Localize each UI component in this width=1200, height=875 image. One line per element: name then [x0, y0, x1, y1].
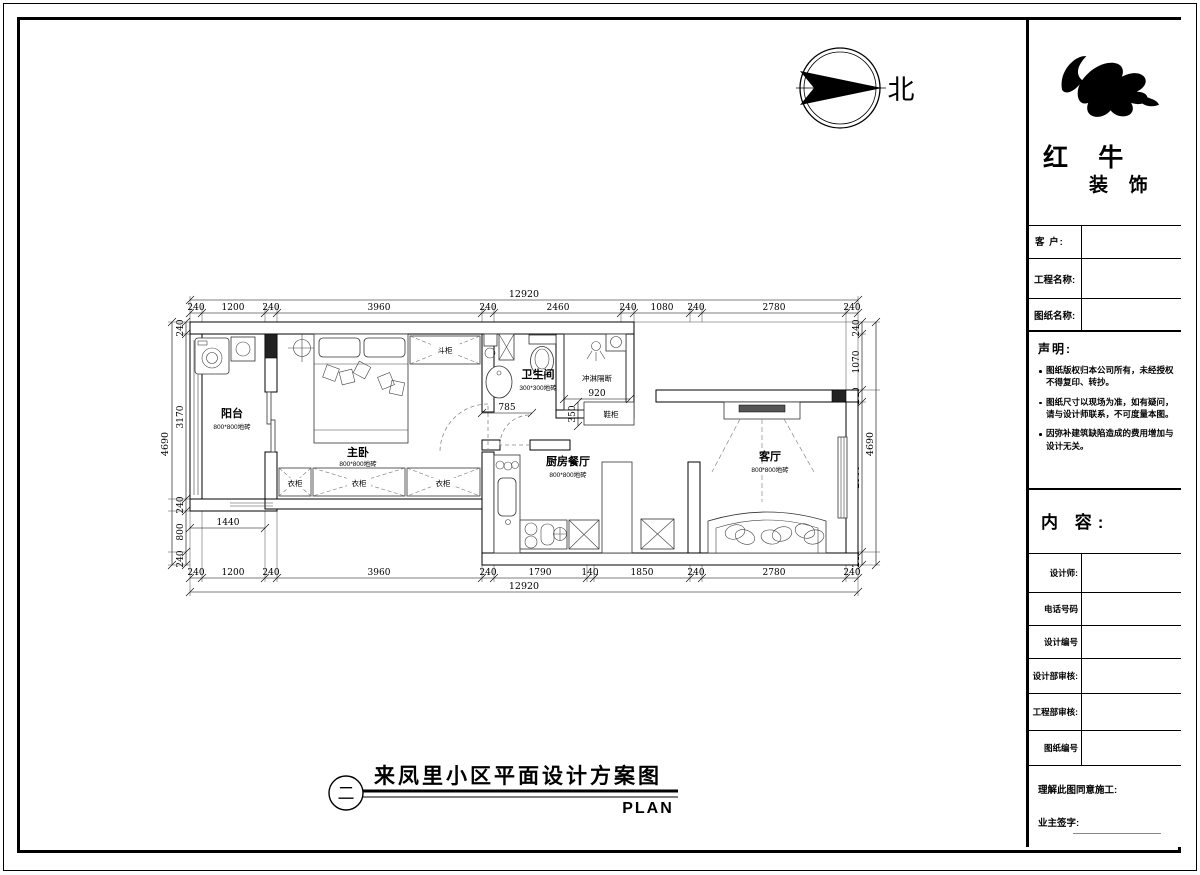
- divider: [1029, 592, 1181, 593]
- dim: 240: [687, 568, 704, 578]
- kitchen-cabinet-1: [569, 520, 599, 549]
- sofa: [708, 512, 826, 553]
- wardrobe-label: 衣柜: [288, 478, 303, 488]
- brand-name: 红 牛: [1043, 138, 1135, 174]
- divider: [1029, 625, 1181, 626]
- dim: 240: [176, 550, 186, 567]
- divider: [1029, 298, 1181, 299]
- radiator: [838, 437, 847, 518]
- dim-left-total: 4690: [160, 432, 171, 456]
- dim-right-total: 4690: [865, 432, 876, 456]
- owner-sign-label: 业主签字:: [1038, 815, 1079, 829]
- mop-sink: [231, 337, 255, 361]
- divider: [1029, 730, 1181, 731]
- wardrobe-2: 衣柜: [313, 468, 405, 496]
- dim: 2460: [547, 303, 570, 313]
- designer-label: 设计师:: [1029, 567, 1078, 579]
- dim: 1070: [852, 350, 862, 373]
- room-balcony: 阳台: [221, 406, 243, 420]
- divider: [1081, 553, 1082, 765]
- left-dimensions: 4690 240 3170 240 800 240: [160, 318, 190, 569]
- sheet-title: 二 来凤里小区平面设计方案图 PLAN: [329, 764, 678, 817]
- tile-label: 800*800地砖: [339, 459, 377, 468]
- divider: [1029, 693, 1181, 694]
- drawing-name-label: 图纸名称:: [1034, 308, 1075, 322]
- room-bathroom: 卫生间: [522, 367, 555, 381]
- dim-bottom-total: 12920: [509, 581, 539, 592]
- divider: [1081, 225, 1082, 330]
- dim: 240: [262, 303, 279, 313]
- dim: 920: [588, 389, 605, 399]
- tile-label: 800*800地砖: [751, 465, 789, 474]
- divider: [1029, 658, 1181, 659]
- room-living: 客厅: [758, 449, 781, 463]
- dim: 2780: [763, 303, 786, 313]
- divider: [1029, 765, 1181, 766]
- stove: [520, 520, 567, 549]
- dim: 1850: [631, 568, 654, 578]
- dim: 3170: [176, 405, 186, 428]
- statement-item: 因弥补建筑缺陷造成的费用增加与设计无关。: [1036, 427, 1176, 452]
- dim: 3960: [368, 568, 391, 578]
- dim: 240: [176, 496, 186, 513]
- divider: [1029, 488, 1181, 490]
- washbasin: [486, 366, 512, 398]
- statement-item: 图纸尺寸以现场为准，如有疑问，请与设计师联系，不可度量本图。: [1036, 396, 1176, 421]
- title-sub: PLAN: [622, 800, 674, 817]
- agree-label: 理解此图同意施工:: [1038, 782, 1117, 796]
- statement-title: 声明:: [1038, 340, 1072, 357]
- dim: 1200: [222, 303, 245, 313]
- divider: [1029, 225, 1181, 226]
- design-no-label: 设计编号: [1029, 636, 1078, 648]
- brand-sub: 装 饰: [1089, 170, 1156, 197]
- dim: 240: [479, 303, 496, 313]
- content-label: 内 容:: [1041, 508, 1109, 533]
- dim: 785: [498, 403, 515, 413]
- design-dept-label: 设计部审核:: [1029, 670, 1078, 682]
- wardrobe-label: 衣柜: [436, 478, 451, 488]
- ceiling-lamp-icon: [288, 334, 316, 362]
- dim: 240: [262, 568, 279, 578]
- signature-line: [1073, 833, 1161, 834]
- dim: 240: [843, 303, 860, 313]
- dim: 350: [568, 405, 578, 422]
- washing-machine: [195, 338, 229, 374]
- dim: 1200: [222, 568, 245, 578]
- tile-label: 800*800地砖: [549, 470, 587, 479]
- shoe-cabinet-label: 鞋柜: [604, 409, 619, 419]
- dim: 240: [187, 303, 204, 313]
- dim: 240: [843, 568, 860, 578]
- eng-dept-label: 工程部审核:: [1029, 706, 1078, 718]
- title-index: 二: [338, 784, 355, 803]
- dim: 1790: [529, 568, 552, 578]
- room-kitchen: 厨房餐厅: [546, 454, 590, 468]
- dim: 3960: [368, 303, 391, 313]
- dim: 240: [176, 319, 186, 336]
- shoe-cabinet: 鞋柜: [584, 402, 634, 425]
- phone-label: 电话号码: [1029, 603, 1078, 615]
- title-block: 红 牛 装 饰 客 户: 工程名称: 图纸名称: 声明: 图纸版权归本公司所有，…: [1026, 20, 1181, 847]
- dim-top-total: 12920: [509, 289, 539, 300]
- divider: [1029, 258, 1181, 259]
- kitchen-counter-sink: [494, 455, 520, 553]
- bed: [314, 334, 408, 443]
- wall-pier: [265, 334, 277, 358]
- tile-label: 300*300地砖: [519, 383, 557, 392]
- statement-list: 图纸版权归本公司所有，未经授权不得复印、转抄。 图纸尺寸以现场为准，如有疑问，请…: [1036, 364, 1176, 459]
- floor-plan-drawing: 12920 240 1200 240 3960 240 2460 240 108…: [0, 0, 1200, 875]
- room-bedroom: 主卧: [347, 445, 369, 459]
- dim: 240: [479, 568, 496, 578]
- dim: 240: [687, 303, 704, 313]
- redbull-logo-icon: [1049, 44, 1161, 132]
- dresser: 斗柜: [410, 336, 480, 364]
- wall-pier: [832, 390, 846, 402]
- dim: 140: [581, 568, 598, 578]
- dim: 240: [187, 568, 204, 578]
- dim: 1440: [217, 518, 240, 528]
- dim: 1080: [651, 303, 674, 313]
- shower-label: 冲淋隔断: [582, 373, 612, 383]
- north-arrow: 北: [796, 48, 915, 128]
- bedroom-door: [440, 404, 488, 452]
- dim: 240: [852, 319, 862, 336]
- balcony-sliding-door: [267, 392, 275, 452]
- customer-label: 客 户:: [1035, 234, 1064, 248]
- bathroom-door: [500, 415, 530, 445]
- divider: [1029, 330, 1181, 332]
- wardrobe-1: 衣柜: [279, 468, 311, 496]
- kitchen-cabinet-2: [641, 519, 674, 549]
- project-name-label: 工程名称:: [1034, 272, 1075, 286]
- dim: 2780: [763, 568, 786, 578]
- dim: 240: [619, 303, 636, 313]
- wardrobe-label: 衣柜: [352, 478, 367, 488]
- divider: [1029, 553, 1181, 554]
- tall-cabinet: [602, 462, 632, 553]
- dim: 800: [176, 523, 186, 540]
- north-label: 北: [888, 75, 915, 105]
- title-main: 来凤里小区平面设计方案图: [374, 764, 662, 788]
- drawing-no-label: 图纸编号: [1029, 742, 1078, 754]
- statement-item: 图纸版权归本公司所有，未经授权不得复印、转抄。: [1036, 364, 1176, 389]
- wardrobe-3: 衣柜: [407, 468, 480, 496]
- dresser-label: 斗柜: [438, 345, 453, 355]
- tile-label: 800*800地砖: [213, 422, 251, 431]
